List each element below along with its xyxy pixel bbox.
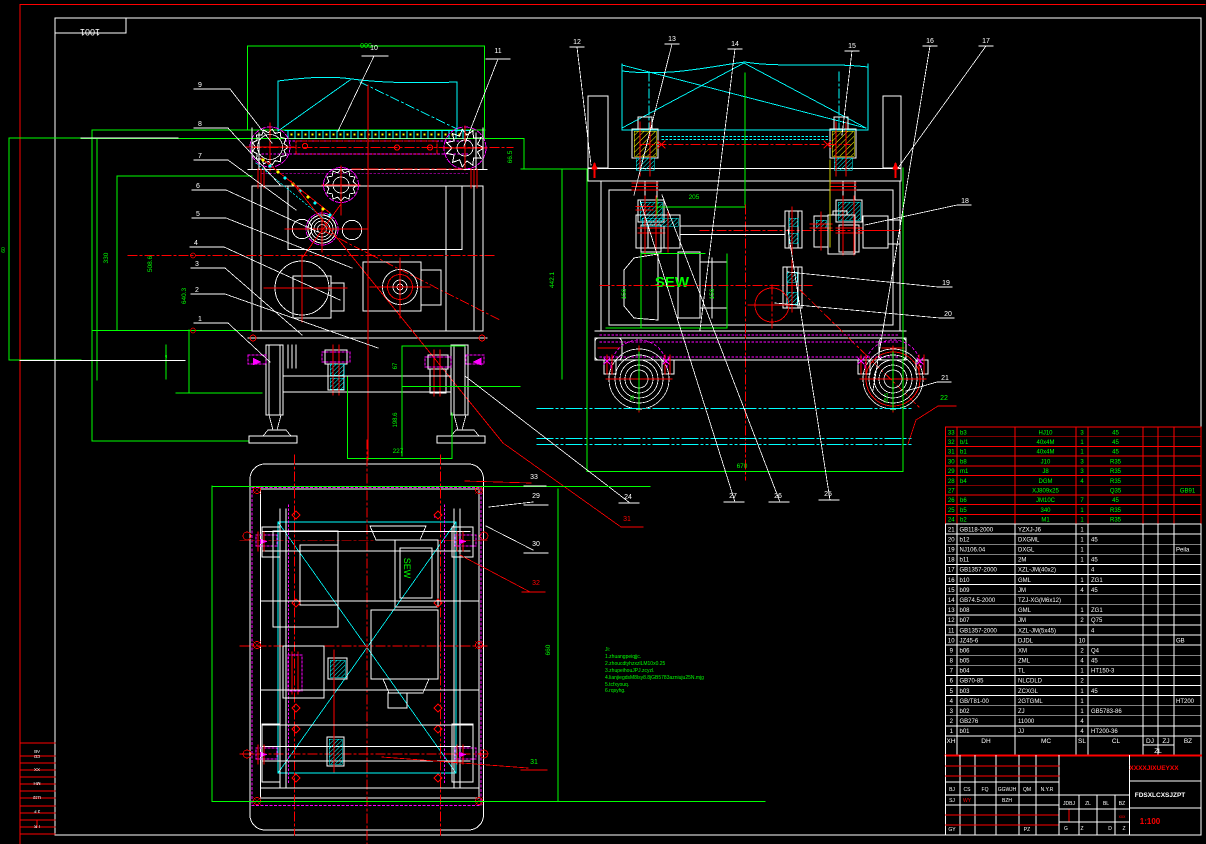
- svg-text:WY: WY: [963, 798, 972, 804]
- svg-text:ZCXGL: ZCXGL: [1018, 689, 1039, 695]
- svg-text:JDBJ: JDBJ: [1063, 801, 1075, 807]
- svg-text:XH: XH: [946, 738, 955, 745]
- svg-text:YZXJ-J6: YZXJ-J6: [1018, 527, 1042, 533]
- svg-text:11: 11: [948, 628, 955, 634]
- svg-text:40x4M: 40x4M: [1036, 450, 1054, 456]
- svg-text:JM10C: JM10C: [1036, 498, 1056, 504]
- svg-text:GB/T81-00: GB/T81-00: [960, 699, 990, 705]
- svg-text:xxx: xxx: [1119, 814, 1127, 819]
- svg-text:GB1357-2000: GB1357-2000: [960, 628, 998, 634]
- svg-text:GML: GML: [1018, 578, 1032, 584]
- svg-text:30: 30: [532, 541, 540, 548]
- svg-text:QM: QM: [1023, 787, 1031, 793]
- svg-text:BZ: BZ: [1119, 801, 1125, 807]
- svg-text:SEW: SEW: [655, 274, 690, 291]
- svg-text:Q4: Q4: [1091, 648, 1100, 654]
- svg-text:GB1357-2000: GB1357-2000: [960, 568, 998, 574]
- svg-text:4: 4: [194, 240, 198, 247]
- svg-text:21: 21: [941, 375, 949, 382]
- svg-text:19: 19: [948, 548, 955, 554]
- svg-text:GB70-85: GB70-85: [960, 679, 985, 685]
- svg-text:DJ: DJ: [1146, 738, 1154, 745]
- svg-text:TL: TL: [1018, 669, 1026, 675]
- svg-text:45: 45: [1091, 558, 1098, 564]
- svg-text:67: 67: [393, 362, 399, 369]
- svg-text:31: 31: [948, 450, 955, 456]
- svg-text:7: 7: [198, 153, 202, 160]
- svg-text:HT150-3: HT150-3: [1091, 669, 1115, 675]
- svg-text:11: 11: [494, 48, 501, 55]
- svg-text:32: 32: [948, 440, 955, 446]
- svg-text:508.6: 508.6: [147, 255, 154, 272]
- svg-text:XZL-JM(40x2): XZL-JM(40x2): [1018, 568, 1056, 574]
- svg-text:Z: Z: [1080, 826, 1083, 832]
- svg-text:6: 6: [196, 183, 200, 190]
- svg-text:670: 670: [737, 463, 748, 470]
- svg-text:JJ: JJ: [1018, 729, 1024, 735]
- svg-text:b12: b12: [960, 537, 971, 543]
- svg-text:CD: CD: [33, 754, 40, 759]
- svg-text:3: 3: [195, 261, 199, 268]
- svg-text:JM: JM: [1018, 618, 1026, 624]
- svg-text:3 F: 3 F: [34, 809, 41, 814]
- svg-text:J8: J8: [1042, 469, 1049, 475]
- svg-text:HT200-36: HT200-36: [1091, 729, 1118, 735]
- svg-text:NJ106.04: NJ106.04: [960, 548, 986, 554]
- svg-text:CS: CS: [964, 787, 972, 793]
- svg-text:b1: b1: [960, 450, 967, 456]
- svg-text:33: 33: [948, 430, 955, 436]
- svg-text:b07: b07: [960, 618, 971, 624]
- svg-text:SEW: SEW: [402, 558, 412, 579]
- svg-text:35.5: 35.5: [884, 393, 890, 403]
- svg-text:15: 15: [848, 43, 856, 50]
- svg-text:ZJ: ZJ: [1018, 709, 1025, 715]
- svg-text:DXGML: DXGML: [1018, 537, 1040, 543]
- svg-text:66.5: 66.5: [507, 150, 514, 163]
- svg-text:J10: J10: [1041, 459, 1051, 465]
- svg-text:PZ: PZ: [1024, 827, 1030, 833]
- svg-text:GY: GY: [948, 827, 956, 833]
- svg-text:10: 10: [370, 45, 378, 52]
- svg-text:R35: R35: [1110, 508, 1122, 514]
- svg-text:Z: Z: [1122, 826, 1125, 832]
- svg-text:DJDL: DJDL: [1018, 638, 1034, 644]
- svg-text:ZG1: ZG1: [1091, 608, 1103, 614]
- svg-text:MC: MC: [1041, 738, 1051, 745]
- svg-text:16: 16: [926, 38, 934, 45]
- svg-text:31: 31: [623, 516, 631, 523]
- svg-text:340: 340: [1040, 508, 1051, 514]
- svg-text:14: 14: [731, 41, 739, 48]
- svg-text:R35: R35: [1110, 479, 1122, 485]
- svg-text:11000: 11000: [1018, 719, 1035, 725]
- svg-text:26: 26: [948, 498, 955, 504]
- svg-text:BJ: BJ: [949, 787, 955, 793]
- svg-text:XJ809x25: XJ809x25: [1032, 489, 1059, 495]
- svg-text:1:100: 1:100: [1140, 817, 1161, 826]
- svg-text:GML: GML: [1018, 608, 1032, 614]
- svg-text:45: 45: [1091, 659, 1098, 665]
- svg-text:13: 13: [668, 36, 676, 43]
- svg-text:DH: DH: [981, 738, 991, 745]
- svg-text:ZL: ZL: [1154, 748, 1162, 755]
- svg-text:6.rqsyhg.: 6.rqsyhg.: [605, 688, 626, 694]
- svg-text:22: 22: [940, 395, 948, 402]
- svg-text:660: 660: [545, 644, 552, 655]
- svg-text:Q35: Q35: [1110, 489, 1122, 495]
- svg-text:SL: SL: [1078, 738, 1086, 745]
- svg-text:45: 45: [1112, 430, 1119, 436]
- svg-text:FDSXLCXSJZPT: FDSXLCXSJZPT: [1135, 792, 1186, 799]
- svg-text:27: 27: [948, 489, 955, 495]
- svg-text:45: 45: [1112, 450, 1119, 456]
- svg-text:UJ2: UJ2: [33, 795, 41, 800]
- svg-text:442.1: 442.1: [549, 271, 556, 288]
- svg-text:b02: b02: [960, 709, 971, 715]
- svg-text:b4: b4: [960, 479, 967, 485]
- svg-text:330: 330: [103, 252, 110, 263]
- svg-text:JZ45-6: JZ45-6: [960, 638, 979, 644]
- svg-text:DXGL: DXGL: [1018, 548, 1035, 554]
- svg-text:45: 45: [1091, 537, 1098, 543]
- svg-text:45: 45: [1091, 588, 1098, 594]
- svg-text:Q75: Q75: [1091, 618, 1103, 624]
- svg-text:33: 33: [530, 474, 538, 481]
- svg-text:G: G: [1064, 826, 1068, 832]
- svg-text:31: 31: [530, 759, 538, 766]
- svg-text:36: 36: [630, 395, 636, 401]
- svg-text:14: 14: [948, 598, 955, 604]
- svg-text:b03: b03: [960, 689, 971, 695]
- svg-text:17: 17: [948, 568, 955, 574]
- svg-text:b05: b05: [960, 659, 971, 665]
- svg-text:32: 32: [532, 580, 540, 587]
- svg-text:25: 25: [824, 491, 832, 498]
- svg-text:2GTGML: 2GTGML: [1018, 699, 1043, 705]
- svg-text:m1: m1: [960, 469, 969, 475]
- svg-text:4.lianjiegdsM8lsy8.8jGB5783azn: 4.lianjiegdsM8lsy8.8jGB5783azniuju25N.mj…: [605, 675, 704, 681]
- svg-text:24: 24: [624, 494, 632, 501]
- svg-text:8: 8: [198, 121, 202, 128]
- svg-text:GB74.5-2000: GB74.5-2000: [960, 598, 996, 604]
- svg-text:24: 24: [948, 518, 955, 524]
- svg-text:XXXXJIXUEYXX: XXXXJIXUEYXX: [1129, 765, 1179, 772]
- svg-text:GGWJH: GGWJH: [998, 787, 1017, 793]
- svg-text:45: 45: [1112, 498, 1119, 504]
- svg-text:12: 12: [573, 39, 581, 46]
- svg-text:b3: b3: [960, 430, 967, 436]
- svg-text:b08: b08: [960, 608, 971, 614]
- svg-text:640.3: 640.3: [181, 287, 188, 304]
- svg-text:1.zhuangpeiqjjc.: 1.zhuangpeiqjjc.: [605, 654, 641, 660]
- svg-text:HJ10: HJ10: [1038, 430, 1053, 436]
- svg-text:b09: b09: [960, 588, 971, 594]
- svg-text:19: 19: [942, 280, 950, 287]
- svg-text:156: 156: [621, 288, 628, 299]
- svg-text:45: 45: [1112, 440, 1119, 446]
- svg-text:SJ: SJ: [949, 798, 955, 804]
- svg-text:ZG1: ZG1: [1091, 578, 1103, 584]
- svg-text:b10: b10: [960, 578, 971, 584]
- svg-text:10: 10: [1079, 638, 1086, 644]
- svg-text:Ji:: Ji:: [605, 647, 610, 653]
- svg-text:15: 15: [948, 588, 955, 594]
- svg-text:GB276: GB276: [960, 719, 979, 725]
- svg-text:18: 18: [961, 198, 969, 205]
- svg-text:b06: b06: [960, 648, 971, 654]
- svg-text:30: 30: [948, 459, 955, 465]
- svg-text:BL: BL: [1103, 801, 1109, 807]
- svg-text:2M: 2M: [1018, 558, 1026, 564]
- svg-text:45: 45: [1091, 689, 1098, 695]
- svg-text:GB118-2000: GB118-2000: [960, 527, 994, 533]
- svg-text:156: 156: [709, 288, 716, 299]
- svg-text:10: 10: [948, 638, 955, 644]
- svg-text:40x4M: 40x4M: [1036, 440, 1054, 446]
- svg-text:16: 16: [948, 578, 955, 584]
- svg-text:b04: b04: [960, 669, 971, 675]
- svg-text:1: 1: [198, 316, 202, 323]
- svg-text:29: 29: [532, 493, 540, 500]
- svg-text:25: 25: [948, 508, 955, 514]
- svg-text:b11: b11: [960, 558, 970, 564]
- svg-text:GB: GB: [1176, 638, 1185, 644]
- svg-text:b2: b2: [960, 518, 967, 524]
- svg-text:BZH: BZH: [1002, 798, 1012, 804]
- svg-text:CL: CL: [1112, 738, 1121, 745]
- svg-text:R35: R35: [1110, 459, 1122, 465]
- svg-text:FQ: FQ: [982, 787, 989, 793]
- svg-text:Peila: Peila: [1176, 548, 1190, 554]
- svg-text:DGM: DGM: [1039, 479, 1053, 485]
- svg-text:MH: MH: [34, 781, 41, 786]
- svg-text:GB91: GB91: [1180, 489, 1196, 495]
- svg-text:GB5783-86: GB5783-86: [1091, 709, 1122, 715]
- svg-text:20: 20: [944, 311, 952, 318]
- svg-text:AB: AB: [34, 749, 40, 754]
- svg-text:9: 9: [198, 82, 202, 89]
- svg-text:b8: b8: [960, 459, 967, 465]
- svg-text:3.zhupeihouJPJ.zcyzl.: 3.zhupeihouJPJ.zcyzl.: [605, 668, 654, 674]
- svg-text:1001: 1001: [80, 27, 100, 37]
- svg-text:60: 60: [1, 247, 7, 253]
- svg-text:ZL: ZL: [1085, 801, 1091, 807]
- svg-text:12: 12: [948, 618, 955, 624]
- svg-text:2: 2: [195, 287, 199, 294]
- svg-text:29: 29: [948, 469, 955, 475]
- svg-text:205: 205: [689, 194, 700, 201]
- svg-text:D: D: [1108, 826, 1112, 832]
- svg-text:20: 20: [948, 537, 955, 543]
- svg-text:XZL-JM(5x45): XZL-JM(5x45): [1018, 628, 1056, 634]
- svg-text:NLCDLD: NLCDLD: [1018, 679, 1043, 685]
- svg-text:13: 13: [948, 608, 955, 614]
- svg-text:17: 17: [982, 38, 990, 45]
- svg-text:28: 28: [948, 479, 955, 485]
- svg-text:R35: R35: [1110, 469, 1122, 475]
- svg-text:XM: XM: [1018, 648, 1027, 654]
- svg-text:198.6: 198.6: [393, 412, 399, 428]
- svg-text:2.zhoucdtyhzxzlLM10x0.25: 2.zhoucdtyhzxzlLM10x0.25: [605, 661, 666, 667]
- svg-text:b/1: b/1: [960, 440, 969, 446]
- svg-text:M1: M1: [1041, 518, 1050, 524]
- svg-text:XX: XX: [34, 767, 40, 772]
- svg-text:b6: b6: [960, 498, 967, 504]
- svg-text:TZJ-XG(M6x12): TZJ-XG(M6x12): [1018, 598, 1061, 604]
- svg-text:I R: I R: [33, 824, 40, 829]
- svg-text:b01: b01: [960, 729, 971, 735]
- svg-text:q: q: [165, 353, 167, 358]
- svg-text:ZJ: ZJ: [1162, 738, 1169, 745]
- svg-text:JM: JM: [1018, 588, 1026, 594]
- svg-text:N.Y.R: N.Y.R: [1041, 787, 1054, 793]
- svg-text:b5: b5: [960, 508, 967, 514]
- svg-text:5: 5: [196, 211, 200, 218]
- svg-text:21: 21: [948, 527, 955, 533]
- svg-text:R35: R35: [1110, 518, 1122, 524]
- svg-text:HT200: HT200: [1176, 699, 1195, 705]
- svg-text:BZ: BZ: [1184, 738, 1192, 745]
- svg-text:ZML: ZML: [1018, 659, 1031, 665]
- svg-text:18: 18: [948, 558, 955, 564]
